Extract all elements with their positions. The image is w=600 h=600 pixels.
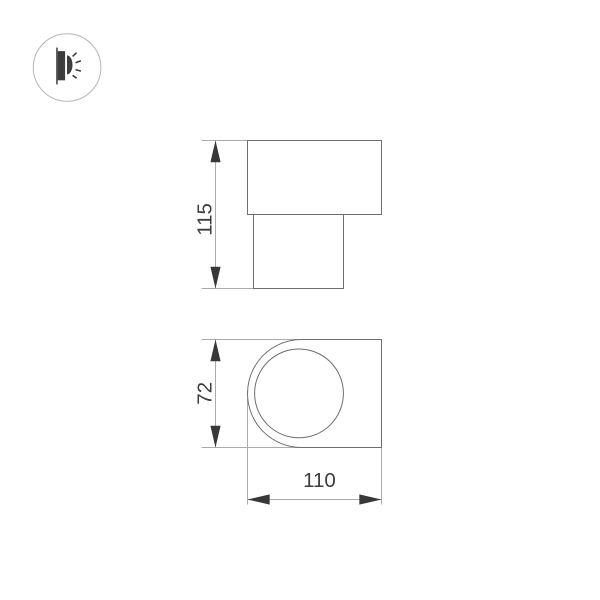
svg-text:110: 110 — [303, 469, 336, 492]
svg-text:72: 72 — [193, 382, 216, 405]
svg-text:115: 115 — [193, 203, 216, 236]
